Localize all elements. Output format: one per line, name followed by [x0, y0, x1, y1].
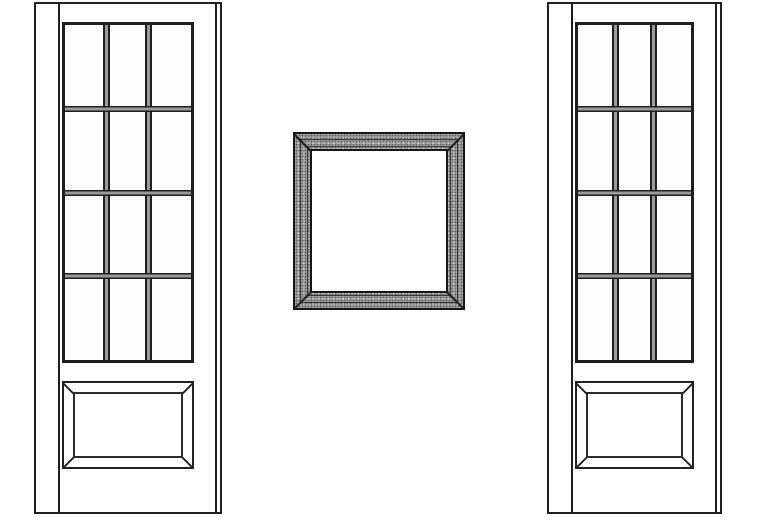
door-right-edge-line [215, 4, 217, 512]
panel-inner-field [586, 392, 683, 458]
horizontal-muntin [578, 190, 691, 196]
door-right-edge-line [715, 4, 717, 512]
picture-frame [293, 132, 465, 310]
illustration-canvas [0, 0, 768, 520]
horizontal-muntin [65, 106, 191, 112]
panel-miter-line [62, 456, 74, 468]
panel-miter-line [575, 382, 587, 394]
glass-lite-grid [62, 22, 194, 363]
panel-miter-line [182, 382, 194, 394]
panel-miter-line [575, 456, 587, 468]
door-left-edge-line [571, 4, 573, 512]
panel-miter-line [62, 382, 74, 394]
bottom-raised-panel [62, 381, 194, 469]
glass-lite-grid [575, 22, 694, 363]
horizontal-muntin [578, 106, 691, 112]
horizontal-muntin [65, 273, 191, 279]
french-door-right [547, 2, 722, 514]
door-left-edge-line [58, 4, 60, 512]
panel-miter-line [682, 382, 694, 394]
panel-inner-field [73, 392, 183, 458]
horizontal-muntin [65, 190, 191, 196]
horizontal-muntin [578, 273, 691, 279]
panel-miter-line [182, 456, 194, 468]
french-door-left [34, 2, 222, 514]
frame-opening [310, 149, 448, 293]
bottom-raised-panel [575, 381, 694, 469]
panel-miter-line [682, 456, 694, 468]
